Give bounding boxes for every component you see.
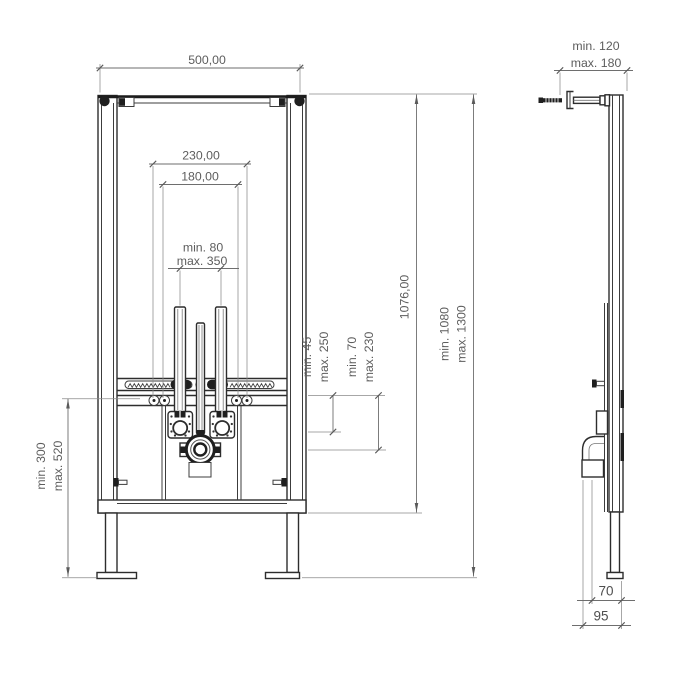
panel-bolts — [114, 478, 287, 487]
drain-box — [189, 463, 211, 478]
frame-bottom-rail — [98, 500, 306, 513]
dim-drain-offset-min-label: min. 70 — [345, 337, 359, 377]
leg-left — [106, 513, 118, 573]
front-view — [97, 96, 306, 579]
leg-right — [287, 513, 299, 573]
panel-bolt-right — [282, 478, 287, 487]
dim-drain-range-min-label: min. 80 — [183, 241, 223, 255]
dim-install-height-min-label: min. 1080 — [438, 307, 452, 361]
dim-frame-depth-label: 95 — [593, 609, 608, 624]
dim-frame-height-label: 1076,00 — [398, 275, 412, 320]
dim-install-height-max-label: max. 1300 — [455, 305, 469, 363]
panel-bolt-left — [114, 478, 119, 487]
technical-drawing: 500,00 230,00 180,00 min. 80 max. 350 10… — [0, 0, 700, 700]
threaded-rod-center — [197, 323, 205, 434]
side-leg — [607, 512, 623, 579]
foot-right — [266, 573, 300, 579]
threaded-rod-right — [216, 307, 227, 412]
dim-bar-offset-max-label: max. 250 — [317, 332, 331, 383]
drawing-svg: 500,00 230,00 180,00 min. 80 max. 350 10… — [0, 0, 700, 700]
dimension-labels: 500,00 230,00 180,00 min. 80 max. 350 10… — [34, 39, 621, 624]
dim-inner-spacing-label: 180,00 — [181, 170, 219, 184]
frame-legs — [97, 513, 300, 579]
frame-left-column — [98, 96, 117, 514]
pipe-bracket — [597, 411, 608, 434]
dim-drain-range-max-label: max. 350 — [177, 254, 228, 268]
dim-rod-depth-max-label: max. 180 — [571, 56, 622, 70]
anchor-rod — [539, 92, 610, 109]
dim-bar-offset-min-label: min. 45 — [300, 337, 314, 377]
dim-outer-spacing-label: 230,00 — [182, 149, 220, 163]
frame-right-column — [287, 96, 306, 514]
drain-elbow — [582, 437, 604, 478]
dim-drain-offset-max-label: max. 230 — [362, 332, 376, 383]
threaded-rod-left — [175, 307, 186, 412]
dim-rod-depth-min-label: min. 120 — [572, 39, 619, 53]
dim-floor-range-max-label: max. 520 — [51, 441, 65, 492]
side-view — [539, 92, 625, 579]
dim-frame-width-label: 500,00 — [188, 53, 226, 67]
side-foot — [607, 573, 623, 579]
wall-rail-profile — [605, 95, 625, 512]
corner-knob-left — [99, 96, 109, 106]
foot-left — [97, 573, 137, 579]
dim-pipe-offset-label: 70 — [598, 584, 613, 599]
corner-knob-right — [294, 96, 304, 106]
wall-bracket-bolt — [592, 380, 605, 388]
dim-floor-range-min-label: min. 300 — [34, 442, 48, 489]
